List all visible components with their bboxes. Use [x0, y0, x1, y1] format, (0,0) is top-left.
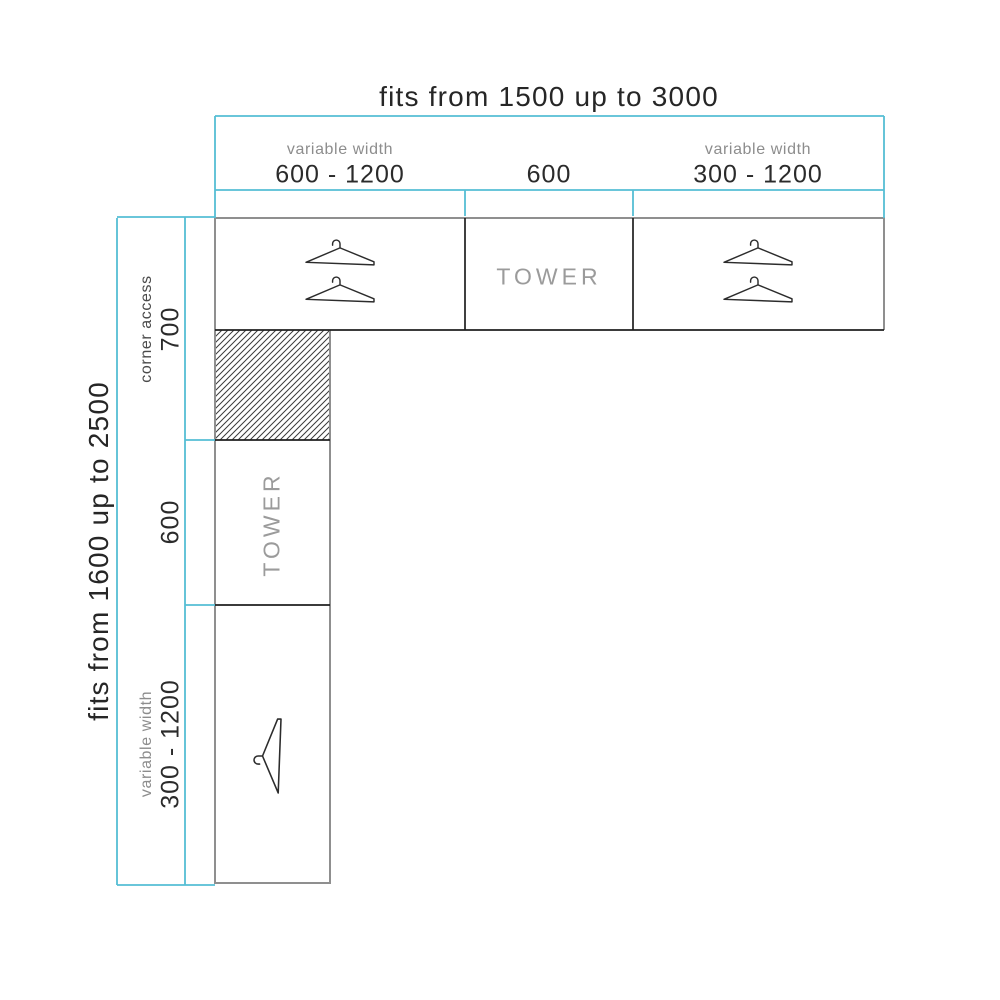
- hanger-icon: [724, 240, 792, 265]
- hanger-icon: [724, 277, 792, 302]
- top-overall-dimension-label: fits from 1500 up to 3000: [379, 83, 719, 111]
- left-overall-dimension-label: fits from 1600 up to 2500: [85, 381, 113, 721]
- diagram-drawing: [0, 0, 1000, 1000]
- hanger-icons: [254, 240, 792, 793]
- tower-unit-label-top: TOWER: [496, 266, 601, 289]
- top-segment1-note: variable width: [287, 142, 393, 158]
- wardrobe-outer-outline: [215, 218, 884, 883]
- top-segment3-value: 300 - 1200: [693, 163, 823, 188]
- top-segment3-note: variable width: [705, 142, 811, 158]
- left-segment2-value: 600: [159, 500, 184, 545]
- tower-unit-label-left: TOWER: [261, 471, 284, 576]
- hanger-icon-rotated: [254, 719, 281, 793]
- corner-access-hatch: [215, 330, 330, 440]
- left-segment1-value: 700: [159, 307, 184, 352]
- top-segment1-value: 600 - 1200: [275, 163, 405, 188]
- top-segment2-value: 600: [527, 163, 572, 188]
- left-segment3-note: variable width: [139, 691, 155, 797]
- wardrobe-dimension-diagram: fits from 1500 up to 3000 variable width…: [0, 0, 1000, 1000]
- hanger-icon: [306, 240, 374, 265]
- left-segment1-note: corner access: [139, 275, 155, 382]
- left-segment3-value: 300 - 1200: [159, 679, 184, 809]
- dimension-lines: [117, 116, 884, 885]
- hanger-icon: [306, 277, 374, 302]
